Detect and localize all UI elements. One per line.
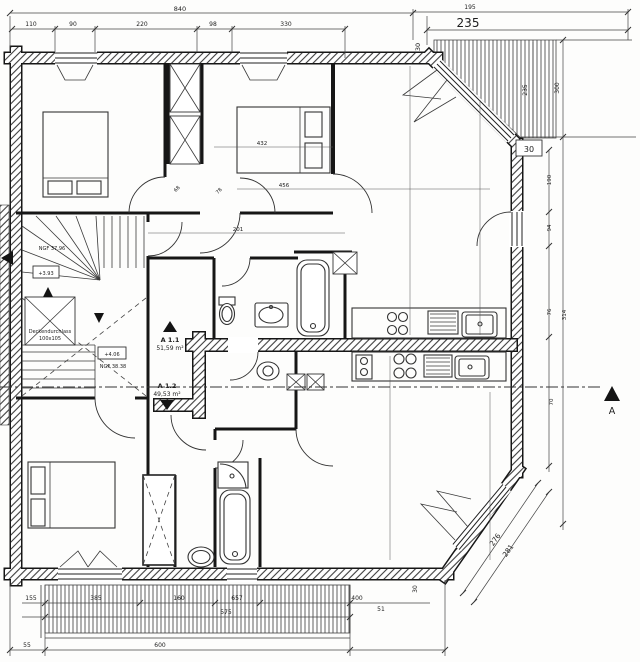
door-bath-a11 [222,258,250,286]
window-top-1 [55,50,97,80]
floor-plan-canvas: A A 1.1 51,59 m² A 1.2 49,53 m² NGF 37.9… [0,0,640,662]
dim-110: 110 [25,21,37,28]
sink [462,312,497,337]
dim-314: 314 [562,309,568,320]
balcony-bottom [41,585,350,638]
dim-30-box: 30 [524,145,534,154]
section-arrow-icon [604,386,620,401]
door-bedroom1 [129,177,165,213]
dim-575: 575 [220,609,232,616]
dim-456: 456 [279,183,290,189]
door-entry-a11 [148,222,182,256]
dim-98: 98 [209,21,217,28]
corner-basin [218,462,248,488]
dim-55: 55 [23,642,31,649]
kitchen-a11 [352,308,506,338]
dim-155: 155 [25,595,37,602]
section-label: A [609,406,616,417]
apartment-separating-wall [160,337,511,412]
drainer [428,311,458,334]
shaft-top [170,64,200,164]
dim-195: 195 [464,4,476,11]
dim-281: 281 [501,543,515,559]
washbasin-round [257,362,279,380]
stair-up-arrow-icon [43,287,53,297]
dim-235-right: 235 [522,84,529,96]
bed-2 [237,107,330,173]
opening-label-2: 100x105 [39,336,61,342]
dim-400: 400 [351,595,363,602]
window-swing-right [477,212,511,246]
dim-51: 51 [377,606,385,613]
dim-840: 840 [174,5,186,13]
cooktop-burner [394,354,404,364]
ngf-top: NGF 37.96 [39,246,65,252]
door-bedroom2 [240,178,275,213]
door-bedroom3 [95,398,135,438]
bath-a11-fixtures [219,260,329,336]
dim-190: 190 [547,174,553,185]
shaft-bath-lower-2 [307,374,324,390]
bath2-fixtures [188,462,250,567]
bathtub [297,260,329,336]
shaft-bath-upper [333,252,357,274]
dim-68: 68 [173,185,182,194]
dim-276: 276 [488,532,503,548]
entry-arrow-a11-icon [163,321,177,332]
apartment-a12-name: A 1.2 [158,382,177,390]
floor-plan-page: A A 1.1 51,59 m² A 1.2 49,53 m² NGF 37.9… [0,0,640,662]
bed-1 [43,112,108,197]
bath-a12-fixtures [257,362,279,380]
ngf-mid: NGF 38.38 [100,364,126,370]
door-living-a12 [296,429,333,466]
window-bottom-bath [227,566,257,582]
dim-657: 657 [231,595,243,602]
dim-385: 385 [90,595,102,602]
level-mid: +4.06 [104,352,119,358]
staircase [22,216,146,398]
dim-160: 160 [173,595,185,602]
shaft-bath-lower-1 [287,374,305,390]
dim-220: 220 [136,21,148,28]
dim-330: 330 [280,21,292,28]
window-top-2 [240,50,287,80]
level-top: +3.93 [38,271,53,277]
door-bath-a12 [230,352,258,380]
cooktop-burner [388,313,397,322]
window-right-wall [509,211,525,247]
dim-94: 94 [547,224,553,231]
door-entry-a12 [171,415,206,450]
dim-432: 432 [257,141,268,147]
dim-235: 235 [457,16,480,30]
dim-300: 300 [554,82,561,94]
bed-3 [28,462,115,528]
door-living-a11 [333,174,372,213]
dim-201: 201 [233,227,244,233]
apartment-a11-area: 51,59 m² [156,345,184,352]
dim-70: 70 [549,398,555,405]
windows [55,50,525,582]
kitchen-a12 [352,352,506,381]
dim-76: 76 [547,308,553,315]
shaft-bottom-dashed [143,475,175,565]
dim-600: 600 [154,642,166,649]
dim-30-chamfer: 30 [414,43,422,51]
dim-30-corner: 30 [412,585,419,593]
dim-90: 90 [69,21,77,28]
opening-label-1: Deckendurchlass [29,329,72,335]
dim-78: 78 [215,187,224,196]
adjacent-wall-strip [0,205,9,425]
window-bottom-bedroom [58,551,122,582]
apartment-a11-name: A 1.1 [161,336,180,344]
stair-down-arrow-icon [94,313,104,323]
apartment-a12-area: 49,53 m² [153,391,181,398]
